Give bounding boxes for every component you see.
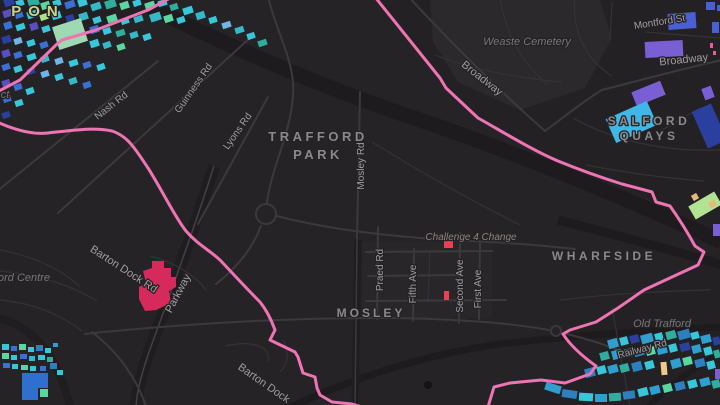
- building: [712, 22, 719, 33]
- building: [12, 364, 18, 369]
- building: [14, 99, 23, 107]
- building: [19, 344, 26, 350]
- building: [195, 11, 206, 20]
- building: [20, 354, 27, 359]
- road: [366, 300, 506, 301]
- area-label: PARK: [293, 147, 343, 162]
- roundabout: [551, 326, 561, 336]
- building: [40, 389, 48, 397]
- building: [57, 370, 63, 375]
- building: [609, 393, 622, 402]
- building: [710, 43, 713, 48]
- road-label: First Ave: [473, 269, 484, 308]
- building: [40, 366, 46, 371]
- building: [29, 356, 35, 361]
- building: [221, 21, 231, 29]
- building: [21, 365, 28, 370]
- building: [257, 39, 267, 47]
- building: [715, 369, 720, 379]
- road: [198, 97, 268, 224]
- poi-label: Challenge 4 Change: [425, 232, 517, 243]
- area-label: TRAFFORD: [268, 129, 368, 144]
- building: [54, 57, 63, 65]
- building: [38, 355, 45, 360]
- map-viewport[interactable]: TRAFFORDPARKMOSLEYWHARFSIDESALFORDQUAYSP…: [0, 0, 720, 405]
- map-canvas[interactable]: TRAFFORDPARKMOSLEYWHARFSIDESALFORDQUAYSP…: [0, 0, 720, 405]
- building: [28, 347, 34, 352]
- building: [3, 363, 10, 368]
- map-dot: [424, 381, 432, 389]
- building: [182, 6, 194, 16]
- building: [25, 87, 34, 95]
- building: [45, 348, 51, 353]
- building: [82, 81, 91, 89]
- building: [142, 33, 151, 41]
- building: [713, 51, 716, 55]
- road-label: Nash Rd: [93, 90, 130, 123]
- building: [11, 355, 17, 360]
- road-label: Fifth Ave: [408, 264, 419, 303]
- building: [102, 41, 111, 49]
- place-label: Old Trafford: [633, 318, 692, 330]
- road: [216, 226, 261, 284]
- road-label: Mosley Rd: [356, 142, 367, 189]
- road-label: Praed Rd: [375, 249, 386, 291]
- road: [267, 0, 293, 203]
- area-label-partial: PON: [11, 3, 65, 20]
- building: [713, 224, 720, 236]
- building: [36, 345, 43, 351]
- building: [579, 393, 593, 402]
- building: [11, 346, 17, 351]
- poi-dots: [424, 381, 432, 389]
- place-label: ct: [1, 89, 11, 101]
- building: [208, 16, 217, 24]
- building: [2, 344, 9, 350]
- building: [82, 61, 91, 69]
- area-label: QUAYS: [619, 129, 678, 143]
- building: [53, 343, 58, 347]
- road-label: Guinness Rd: [173, 62, 215, 116]
- building: [116, 43, 125, 51]
- road: [0, 61, 158, 192]
- area-label: WHARFSIDE: [552, 249, 656, 263]
- building: [234, 26, 244, 34]
- minor-road: [225, 344, 269, 362]
- building: [54, 73, 63, 81]
- red-building-small: [444, 291, 449, 300]
- building: [129, 31, 138, 39]
- building: [50, 363, 57, 369]
- building: [660, 362, 667, 375]
- building: [96, 63, 105, 71]
- building: [40, 70, 49, 78]
- building: [89, 39, 100, 48]
- building: [68, 59, 78, 67]
- building: [2, 353, 9, 359]
- building: [595, 394, 607, 402]
- building: [30, 366, 36, 371]
- building: [47, 357, 53, 362]
- place-label: Weaste Cemetery: [483, 36, 572, 48]
- roundabout: [256, 204, 276, 224]
- building: [706, 2, 715, 10]
- road-label: Second Ave: [455, 259, 466, 313]
- place-label: ord Centre: [0, 272, 50, 284]
- building: [115, 29, 125, 37]
- area-label: MOSLEY: [337, 306, 406, 320]
- area-label: SALFORD: [608, 114, 691, 128]
- building: [68, 77, 77, 85]
- building: [1, 111, 10, 119]
- building: [623, 390, 636, 400]
